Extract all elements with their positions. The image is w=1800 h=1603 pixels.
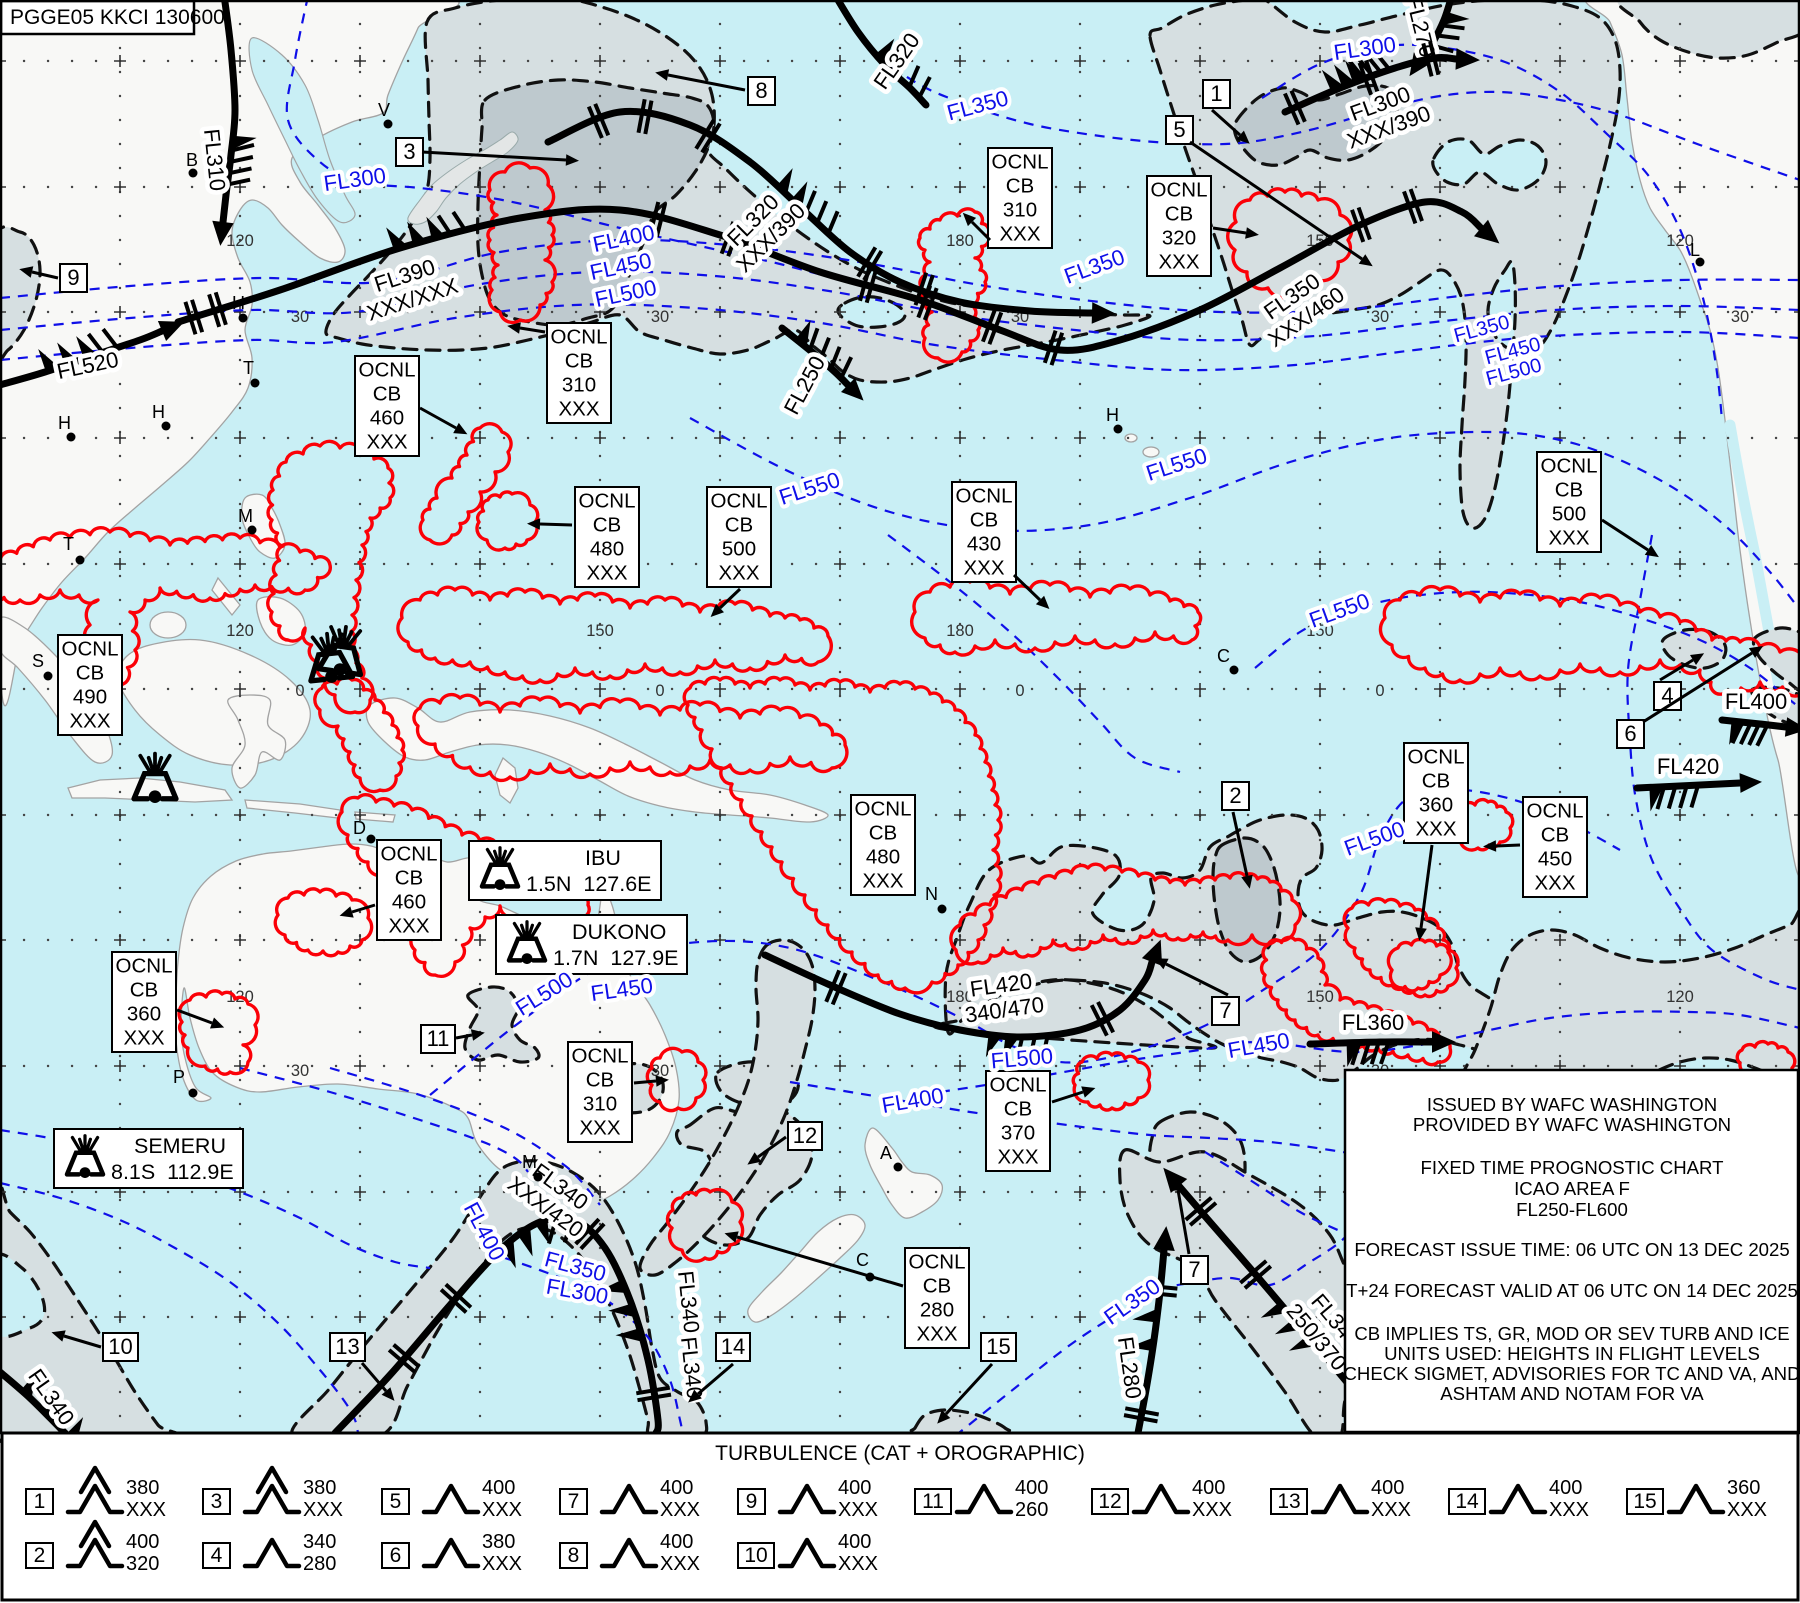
svg-text:TURBULENCE (CAT + OROGRAPHIC): TURBULENCE (CAT + OROGRAPHIC) [715, 1442, 1085, 1465]
svg-text:XXX: XXX [123, 1026, 164, 1049]
svg-text:CB: CB [1006, 174, 1034, 197]
svg-text:450: 450 [1538, 847, 1572, 870]
svg-text:H: H [58, 413, 71, 433]
svg-text:380: 380 [126, 1477, 159, 1499]
svg-text:150: 150 [586, 622, 614, 640]
svg-text:XXX: XXX [999, 222, 1040, 245]
svg-text:PROVIDED BY WAFC WASHINGTON: PROVIDED BY WAFC WASHINGTON [1413, 1114, 1731, 1135]
svg-text:CB IMPLIES TS, GR, MOD OR SEV: CB IMPLIES TS, GR, MOD OR SEV TURB AND I… [1354, 1323, 1789, 1344]
svg-text:XXX: XXX [660, 1553, 700, 1575]
svg-text:OCNL: OCNL [909, 1250, 966, 1273]
svg-text:CB: CB [76, 661, 104, 684]
svg-text:B: B [186, 150, 198, 170]
svg-text:8.1S 112.9E: 8.1S 112.9E [111, 1160, 234, 1184]
svg-text:IBU: IBU [585, 846, 621, 870]
svg-text:XXX: XXX [579, 1116, 620, 1139]
svg-text:L: L [1690, 240, 1700, 260]
svg-text:XXX: XXX [1415, 817, 1456, 840]
svg-text:T: T [243, 358, 254, 378]
svg-text:PGGE05 KKCI 130600: PGGE05 KKCI 130600 [10, 6, 225, 29]
svg-text:180: 180 [946, 232, 974, 250]
svg-text:T: T [63, 534, 74, 554]
svg-text:7: 7 [1219, 998, 1231, 1023]
svg-text:500: 500 [722, 537, 756, 560]
svg-text:0: 0 [1015, 682, 1024, 700]
svg-text:480: 480 [590, 537, 624, 560]
svg-text:CB: CB [395, 866, 423, 889]
svg-text:OCNL: OCNL [62, 637, 119, 660]
svg-text:CB: CB [1541, 823, 1569, 846]
svg-text:2: 2 [34, 1544, 46, 1567]
svg-text:400: 400 [1549, 1477, 1582, 1499]
svg-text:T+24 FORECAST VALID AT 06 UTC: T+24 FORECAST VALID AT 06 UTC ON 14 DEC … [1346, 1280, 1798, 1301]
svg-text:360: 360 [1419, 793, 1453, 816]
svg-text:310: 310 [562, 373, 596, 396]
svg-text:150: 150 [1306, 988, 1334, 1006]
svg-text:XXX: XXX [1158, 250, 1199, 273]
svg-text:OCNL: OCNL [381, 842, 438, 865]
svg-text:CB: CB [565, 349, 593, 372]
svg-text:H: H [152, 402, 165, 422]
svg-text:400: 400 [660, 1477, 693, 1499]
svg-text:CB: CB [1165, 202, 1193, 225]
svg-text:310: 310 [1003, 198, 1037, 221]
svg-text:XXX: XXX [916, 1322, 957, 1345]
svg-text:14: 14 [1455, 1490, 1479, 1513]
svg-text:C: C [856, 1250, 869, 1270]
svg-text:P: P [173, 1067, 185, 1087]
svg-text:CB: CB [970, 508, 998, 531]
svg-text:180: 180 [946, 622, 974, 640]
svg-text:9: 9 [746, 1490, 758, 1513]
svg-text:ICAO AREA F: ICAO AREA F [1514, 1178, 1630, 1199]
svg-text:XXX: XXX [1534, 871, 1575, 894]
svg-text:13: 13 [1277, 1490, 1300, 1513]
svg-text:M: M [522, 1152, 537, 1172]
svg-text:N: N [925, 884, 938, 904]
svg-text:6: 6 [1624, 721, 1636, 746]
svg-text:14: 14 [721, 1334, 745, 1359]
svg-text:XXX: XXX [1549, 1499, 1589, 1521]
svg-text:S: S [32, 651, 44, 671]
svg-text:0: 0 [295, 682, 304, 700]
svg-text:13: 13 [335, 1334, 359, 1359]
svg-text:260: 260 [1015, 1499, 1048, 1521]
svg-text:OCNL: OCNL [855, 797, 912, 820]
svg-text:XXX: XXX [558, 397, 599, 420]
svg-text:D: D [353, 818, 366, 838]
svg-text:CB: CB [373, 382, 401, 405]
svg-text:OCNL: OCNL [1151, 178, 1208, 201]
svg-text:CB: CB [1555, 478, 1583, 501]
svg-text:6: 6 [390, 1544, 402, 1567]
svg-text:15: 15 [986, 1334, 1010, 1359]
svg-text:30: 30 [1731, 308, 1749, 326]
svg-text:XXX: XXX [1371, 1499, 1411, 1521]
svg-text:OCNL: OCNL [572, 1044, 629, 1067]
svg-text:12: 12 [1098, 1490, 1121, 1513]
svg-text:400: 400 [838, 1531, 871, 1553]
svg-text:FL420: FL420 [1657, 754, 1719, 779]
svg-text:OCNL: OCNL [551, 325, 608, 348]
svg-text:ASHTAM AND NOTAM FOR VA: ASHTAM AND NOTAM FOR VA [1440, 1383, 1704, 1404]
svg-text:8: 8 [755, 78, 767, 103]
svg-text:CB: CB [130, 978, 158, 1001]
svg-text:H: H [232, 293, 245, 313]
svg-text:3: 3 [211, 1490, 223, 1513]
svg-text:120: 120 [226, 622, 254, 640]
svg-text:XXX: XXX [303, 1499, 343, 1521]
svg-text:FL400: FL400 [1725, 689, 1787, 714]
svg-text:XXX: XXX [718, 561, 759, 584]
svg-text:12: 12 [793, 1123, 817, 1148]
svg-text:OCNL: OCNL [1541, 454, 1598, 477]
svg-text:400: 400 [660, 1531, 693, 1553]
svg-text:30: 30 [651, 308, 669, 326]
svg-text:400: 400 [1371, 1477, 1404, 1499]
svg-text:280: 280 [303, 1553, 336, 1575]
svg-text:10: 10 [108, 1334, 132, 1359]
svg-text:FIXED TIME PROGNOSTIC CHART: FIXED TIME PROGNOSTIC CHART [1420, 1157, 1723, 1178]
svg-text:0: 0 [1375, 682, 1384, 700]
svg-text:5: 5 [1173, 117, 1185, 142]
svg-text:1: 1 [1210, 81, 1222, 106]
svg-text:XXX: XXX [1548, 526, 1589, 549]
svg-text:400: 400 [838, 1477, 871, 1499]
svg-text:FL250-FL600: FL250-FL600 [1516, 1199, 1628, 1220]
svg-text:CB: CB [923, 1274, 951, 1297]
svg-text:120: 120 [226, 232, 254, 250]
svg-text:OCNL: OCNL [1527, 799, 1584, 822]
svg-text:1.7N 127.9E: 1.7N 127.9E [553, 946, 679, 970]
svg-text:XXX: XXX [586, 561, 627, 584]
svg-text:4: 4 [211, 1544, 223, 1567]
svg-text:370: 370 [1001, 1121, 1035, 1144]
svg-text:360: 360 [1727, 1477, 1760, 1499]
svg-text:310: 310 [583, 1092, 617, 1115]
svg-text:CB: CB [593, 513, 621, 536]
svg-text:UNITS USED: HEIGHTS IN FLIGHT: UNITS USED: HEIGHTS IN FLIGHT LEVELS [1384, 1343, 1760, 1364]
svg-text:OCNL: OCNL [359, 358, 416, 381]
svg-text:XXX: XXX [838, 1553, 878, 1575]
svg-text:XXX: XXX [69, 709, 110, 732]
svg-text:OCNL: OCNL [956, 484, 1013, 507]
svg-text:H: H [1106, 405, 1119, 425]
svg-text:430: 430 [967, 532, 1001, 555]
svg-text:XXX: XXX [963, 556, 1004, 579]
svg-text:1: 1 [34, 1490, 46, 1513]
svg-text:460: 460 [370, 406, 404, 429]
svg-text:460: 460 [392, 890, 426, 913]
svg-text:CB: CB [1004, 1097, 1032, 1120]
svg-text:FORECAST ISSUE TIME: 06 UTC ON: FORECAST ISSUE TIME: 06 UTC ON 13 DEC 20… [1354, 1239, 1789, 1260]
svg-text:15: 15 [1633, 1490, 1656, 1513]
svg-text:340: 340 [303, 1531, 336, 1553]
svg-text:C: C [1217, 646, 1230, 666]
svg-text:0: 0 [655, 682, 664, 700]
svg-text:XXX: XXX [388, 914, 429, 937]
svg-text:11: 11 [922, 1490, 944, 1513]
svg-text:CB: CB [869, 821, 897, 844]
svg-text:7: 7 [1188, 1257, 1200, 1282]
svg-text:2: 2 [1229, 783, 1241, 808]
svg-text:280: 280 [920, 1298, 954, 1321]
svg-text:9: 9 [67, 265, 79, 290]
svg-text:OCNL: OCNL [711, 489, 768, 512]
svg-text:ISSUED BY WAFC WASHINGTON: ISSUED BY WAFC WASHINGTON [1427, 1094, 1717, 1115]
svg-text:400: 400 [1015, 1477, 1048, 1499]
svg-text:OCNL: OCNL [579, 489, 636, 512]
svg-text:1.5N 127.6E: 1.5N 127.6E [526, 872, 652, 896]
svg-text:XXX: XXX [1192, 1499, 1232, 1521]
svg-text:CB: CB [1422, 769, 1450, 792]
svg-text:360: 360 [127, 1002, 161, 1025]
svg-text:400: 400 [482, 1477, 515, 1499]
svg-text:30: 30 [1371, 308, 1389, 326]
svg-text:XXX: XXX [1727, 1499, 1767, 1521]
svg-text:XXX: XXX [482, 1499, 522, 1521]
svg-text:480: 480 [866, 845, 900, 868]
svg-text:V: V [378, 100, 390, 120]
svg-text:10: 10 [744, 1544, 767, 1567]
svg-text:XXX: XXX [660, 1499, 700, 1521]
svg-text:380: 380 [482, 1531, 515, 1553]
svg-text:CB: CB [725, 513, 753, 536]
svg-text:380: 380 [303, 1477, 336, 1499]
svg-text:8: 8 [568, 1544, 580, 1567]
svg-text:A: A [880, 1143, 892, 1163]
svg-text:SEMERU: SEMERU [134, 1134, 226, 1158]
svg-text:FL360: FL360 [1342, 1010, 1404, 1035]
svg-text:DUKONO: DUKONO [572, 920, 666, 944]
svg-text:XXX: XXX [366, 430, 407, 453]
svg-text:OCNL: OCNL [116, 954, 173, 977]
svg-text:30: 30 [291, 1062, 309, 1080]
svg-text:M: M [238, 506, 253, 526]
svg-text:OCNL: OCNL [1408, 745, 1465, 768]
svg-text:XXX: XXX [126, 1499, 166, 1521]
svg-text:500: 500 [1552, 502, 1586, 525]
svg-text:XXX: XXX [838, 1499, 878, 1521]
svg-text:490: 490 [73, 685, 107, 708]
svg-text:3: 3 [403, 139, 415, 164]
svg-text:XXX: XXX [482, 1553, 522, 1575]
svg-text:320: 320 [1162, 226, 1196, 249]
svg-text:XXX: XXX [997, 1145, 1038, 1168]
svg-text:XXX: XXX [862, 869, 903, 892]
svg-text:5: 5 [390, 1490, 402, 1513]
svg-text:400: 400 [1192, 1477, 1225, 1499]
svg-text:CB: CB [586, 1068, 614, 1091]
svg-text:OCNL: OCNL [990, 1073, 1047, 1096]
svg-text:11: 11 [427, 1026, 450, 1051]
svg-text:320: 320 [126, 1553, 159, 1575]
svg-text:OCNL: OCNL [992, 150, 1049, 173]
svg-text:120: 120 [1666, 988, 1694, 1006]
svg-text:7: 7 [568, 1490, 580, 1513]
svg-text:400: 400 [126, 1531, 159, 1553]
svg-text:CHECK SIGMET, ADVISORIES FOR T: CHECK SIGMET, ADVISORIES FOR TC AND VA, … [1343, 1363, 1800, 1384]
